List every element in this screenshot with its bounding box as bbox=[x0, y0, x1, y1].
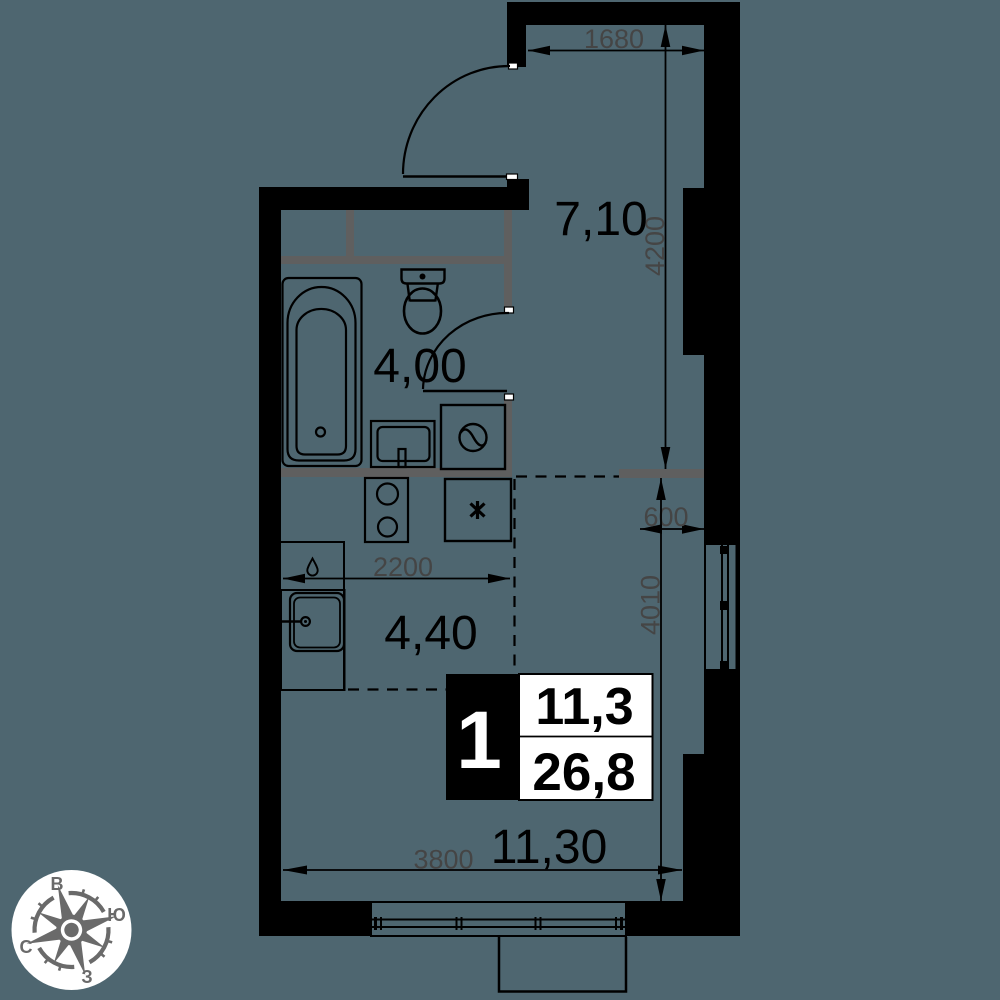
svg-text:3800: 3800 bbox=[413, 845, 473, 875]
svg-text:11,3: 11,3 bbox=[535, 678, 633, 736]
svg-text:З: З bbox=[81, 967, 92, 987]
svg-text:7,10: 7,10 bbox=[554, 193, 647, 246]
svg-text:11,30: 11,30 bbox=[491, 821, 608, 874]
svg-text:26,8: 26,8 bbox=[532, 743, 635, 802]
svg-text:4,00: 4,00 bbox=[373, 340, 466, 393]
svg-text:600: 600 bbox=[643, 502, 688, 532]
svg-text:В: В bbox=[51, 874, 64, 894]
svg-text:1680: 1680 bbox=[584, 24, 644, 54]
svg-text:4,40: 4,40 bbox=[384, 607, 477, 660]
svg-text:1: 1 bbox=[456, 695, 502, 786]
svg-text:Ю: Ю bbox=[107, 905, 126, 925]
svg-text:4010: 4010 bbox=[636, 575, 666, 635]
svg-text:С: С bbox=[20, 937, 33, 957]
svg-text:2200: 2200 bbox=[373, 552, 433, 582]
